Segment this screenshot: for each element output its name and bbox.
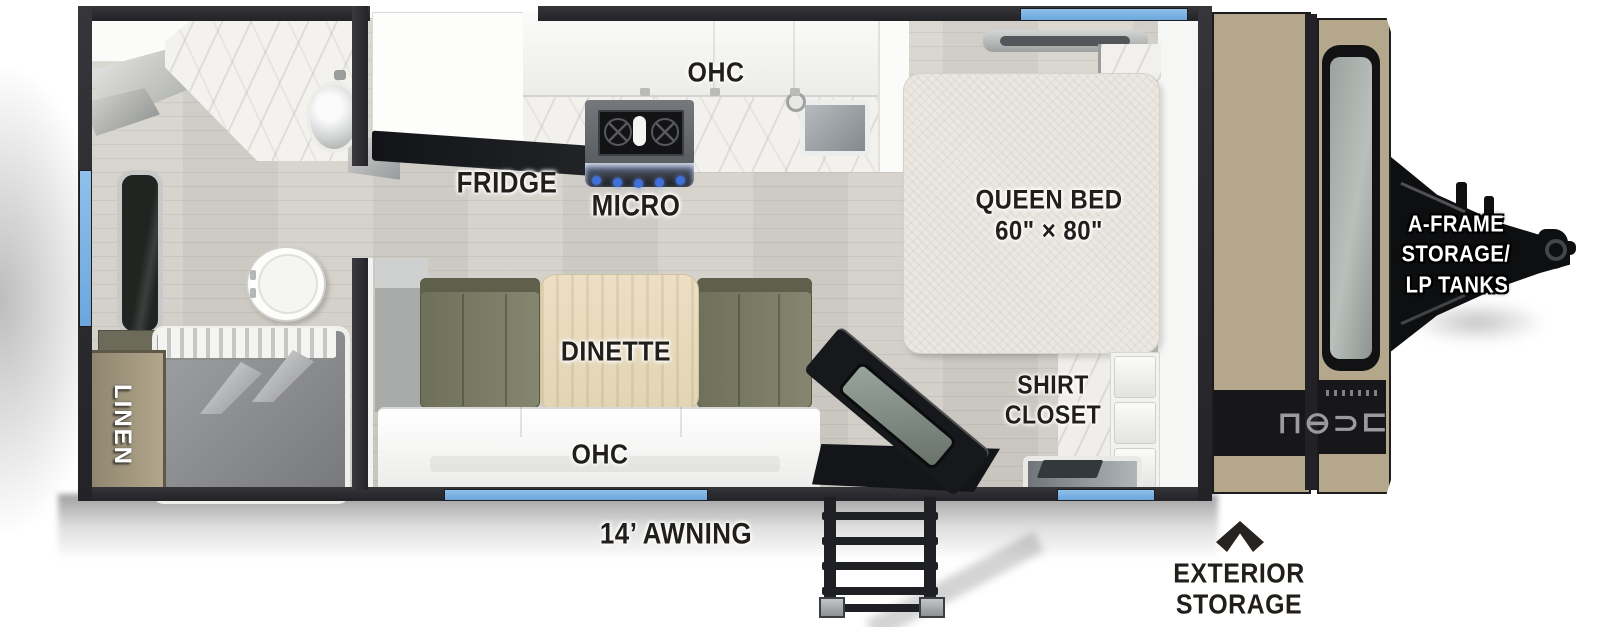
shirt-closet-label-line2: CLOSET: [1005, 401, 1101, 431]
bathroom-wall-lower: [352, 258, 368, 490]
bench-seam: [462, 294, 464, 406]
brand-logo-graphic: ⊐⊂⊖⊔: [1318, 402, 1387, 444]
queen-bed-label-line2: 60" × 80": [995, 216, 1103, 247]
entry-step: [822, 537, 938, 545]
steps-foot: [819, 597, 845, 618]
entry-step: [822, 587, 938, 595]
bench-seam: [505, 294, 507, 406]
fridge-label: FRIDGE: [457, 167, 558, 200]
toilet-hinge: [250, 270, 256, 280]
bathroom-wall-window: [117, 170, 163, 336]
drawer: [1114, 402, 1156, 444]
stove-knob: [613, 178, 622, 187]
bench-seam: [778, 294, 780, 406]
cooktop-center-grate: [633, 116, 646, 146]
steps-foot: [919, 597, 945, 618]
window-dinette: [444, 489, 708, 501]
stove-knob: [676, 176, 685, 185]
micro-label: MICRO: [592, 190, 681, 223]
aframe-label-line1: A-FRAME: [1408, 212, 1504, 238]
entry-step: [822, 562, 938, 570]
rv-floorplan-canvas: LINEN OHC FRIDGE MICRO: [0, 0, 1600, 627]
burner-icon: [604, 118, 632, 146]
cabinet-handle: [790, 88, 800, 96]
entry-step: [822, 512, 938, 520]
hitch-coupler-ring: [1545, 239, 1567, 261]
bathroom-wall-face: [368, 258, 373, 487]
stove-knob: [655, 178, 664, 187]
wall-top: [78, 6, 370, 21]
awning-label: 14’ AWNING: [600, 518, 752, 551]
cabinet-seam: [793, 12, 795, 95]
burner-icon: [651, 118, 679, 146]
aframe-label-line3: LP TANKS: [1406, 273, 1509, 299]
stove-knob: [592, 176, 601, 185]
wall-front-interior: [1198, 6, 1212, 501]
cabinet-seam: [680, 407, 682, 437]
bathroom-wall-upper: [352, 6, 368, 166]
shower-glass-door: [158, 328, 336, 360]
linen-label: LINEN: [108, 384, 136, 466]
bench-seam: [738, 294, 740, 406]
window-bedroom-bottom: [1057, 489, 1155, 501]
window-bedroom-top: [1020, 8, 1188, 21]
exterior-storage-label-line1: EXTERIOR: [1173, 557, 1304, 590]
kitchen-ohc-label: OHC: [688, 56, 745, 89]
toilet-lid: [258, 254, 318, 314]
aframe-label-line2: STORAGE/: [1402, 242, 1511, 268]
chevron-up-icon: [1216, 521, 1264, 552]
refrigerator: [372, 12, 540, 150]
front-window-glass: [1330, 57, 1372, 359]
dinette-bench-left: [420, 278, 540, 408]
shirt-closet-label-line1: SHIRT: [1017, 371, 1089, 401]
cabinet-seam: [520, 407, 522, 437]
kitchen-sink: [800, 100, 870, 156]
queen-bed-label-line1: QUEEN BED: [975, 185, 1122, 216]
stove-knob: [634, 179, 643, 188]
wall-top: [538, 6, 1018, 21]
cabinet-handle: [640, 88, 650, 96]
brand-tagline-graphic: [1326, 390, 1380, 396]
dinette-label: DINETTE: [561, 335, 671, 368]
bathroom-faucet: [334, 70, 346, 80]
dinette-ohc-label: OHC: [572, 438, 629, 471]
exterior-storage-label-line2: STORAGE: [1176, 588, 1302, 621]
floor-vent-slab: [1037, 460, 1104, 478]
toilet-hinge: [250, 288, 256, 298]
dinette-bench-right: [697, 278, 812, 408]
window-rear: [79, 170, 92, 327]
drawer: [1114, 356, 1156, 398]
